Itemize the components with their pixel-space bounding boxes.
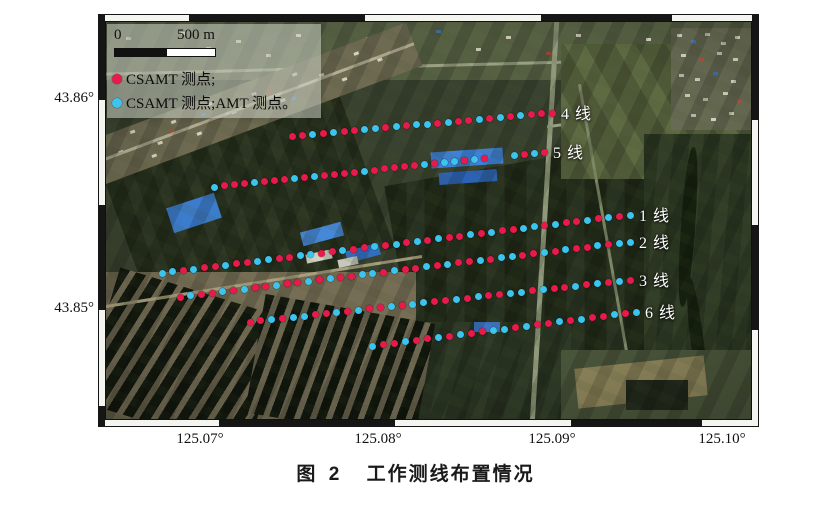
survey-point-csamt	[541, 149, 548, 156]
survey-point-csamt	[411, 162, 418, 169]
survey-point-csamt-amt	[435, 334, 442, 341]
survey-point-csamt-amt	[541, 249, 548, 256]
survey-point-csamt	[230, 287, 237, 294]
survey-point-csamt	[231, 181, 238, 188]
survey-point-csamt	[351, 169, 358, 176]
legend-item-csamt: CSAMT 测点;	[112, 68, 215, 89]
latitude-tick-label: 43.86°	[36, 90, 94, 107]
survey-point-csamt	[567, 317, 574, 324]
survey-point-csamt-amt	[441, 159, 448, 166]
survey-point-csamt-amt	[633, 309, 640, 316]
survey-point-csamt-amt	[451, 158, 458, 165]
survey-point-csamt	[468, 330, 475, 337]
survey-point-csamt-amt	[611, 311, 618, 318]
survey-point-csamt	[320, 130, 327, 137]
survey-point-csamt-amt	[453, 296, 460, 303]
survey-point-csamt	[350, 246, 357, 253]
survey-point-csamt	[446, 234, 453, 241]
survey-point-csamt	[434, 120, 441, 127]
survey-point-csamt	[512, 324, 519, 331]
survey-point-csamt-amt	[251, 179, 258, 186]
survey-point-csamt	[221, 182, 228, 189]
longitude-tick-label: 125.10°	[680, 431, 764, 448]
survey-point-csamt-amt	[273, 282, 280, 289]
figure-title: 工作测线布置情况	[367, 464, 535, 485]
survey-point-csamt	[519, 252, 526, 259]
survey-point-csamt	[299, 132, 306, 139]
survey-line-label: 1 线	[639, 202, 670, 226]
survey-point-csamt-amt	[159, 270, 166, 277]
survey-point-csamt	[424, 237, 431, 244]
figure-number: 图 2	[296, 464, 343, 485]
survey-point-csamt	[401, 163, 408, 170]
survey-point-csamt-amt	[393, 123, 400, 130]
survey-point-csamt-amt	[327, 275, 334, 282]
survey-point-csamt	[573, 245, 580, 252]
survey-point-csamt	[261, 178, 268, 185]
survey-point-csamt	[289, 133, 296, 140]
survey-point-csamt	[391, 164, 398, 171]
survey-point-csamt	[279, 315, 286, 322]
survey-point-csamt	[455, 118, 462, 125]
legend-item-label: CSAMT 测点;	[126, 68, 215, 89]
survey-point-csamt-amt	[222, 262, 229, 269]
survey-point-csamt	[616, 213, 623, 220]
survey-point-csamt	[180, 267, 187, 274]
survey-point-csamt	[456, 233, 463, 240]
survey-point-csamt-amt	[211, 184, 218, 191]
survey-point-csamt-amt	[540, 286, 547, 293]
survey-point-csamt-amt	[616, 240, 623, 247]
survey-point-csamt-amt	[518, 289, 525, 296]
survey-point-csamt	[413, 337, 420, 344]
survey-point-csamt	[528, 111, 535, 118]
survey-point-csamt-amt	[388, 303, 395, 310]
csamt-amt-point-icon	[112, 98, 122, 108]
survey-point-csamt-amt	[372, 125, 379, 132]
survey-point-csamt-amt	[305, 278, 312, 285]
survey-line-label: 5 线	[553, 139, 584, 163]
survey-point-csamt	[478, 230, 485, 237]
survey-point-csamt	[627, 277, 634, 284]
survey-point-csamt-amt	[477, 257, 484, 264]
survey-point-csamt-amt	[594, 280, 601, 287]
survey-point-csamt	[600, 313, 607, 320]
longitude-tick-label: 125.08°	[336, 431, 420, 448]
survey-point-csamt	[382, 242, 389, 249]
survey-point-csamt	[212, 263, 219, 270]
survey-point-csamt	[446, 333, 453, 340]
survey-point-csamt-amt	[457, 331, 464, 338]
survey-point-csamt	[442, 297, 449, 304]
survey-point-csamt	[341, 128, 348, 135]
survey-point-csamt	[252, 284, 259, 291]
neatline-bottom	[99, 420, 758, 426]
survey-point-csamt-amt	[330, 129, 337, 136]
survey-point-csamt	[589, 314, 596, 321]
survey-point-csamt-amt	[520, 225, 527, 232]
survey-point-csamt-amt	[523, 323, 530, 330]
legend-item-label: CSAMT 测点;AMT 测点。	[126, 92, 297, 113]
survey-point-csamt-amt	[501, 326, 508, 333]
survey-point-csamt	[318, 250, 325, 257]
survey-point-csamt-amt	[369, 343, 376, 350]
survey-point-csamt	[331, 171, 338, 178]
survey-point-csamt-amt	[627, 212, 634, 219]
survey-point-csamt	[209, 290, 216, 297]
survey-point-csamt	[551, 285, 558, 292]
survey-point-csamt-amt	[507, 290, 514, 297]
survey-point-csamt-amt	[291, 175, 298, 182]
survey-point-csamt	[487, 256, 494, 263]
survey-point-csamt	[521, 151, 528, 158]
longitude-tick-label: 125.09°	[510, 431, 594, 448]
survey-point-csamt-amt	[309, 131, 316, 138]
survey-point-csamt	[534, 321, 541, 328]
survey-point-csamt	[323, 310, 330, 317]
survey-point-csamt-amt	[476, 116, 483, 123]
survey-point-csamt	[286, 254, 293, 261]
survey-point-csamt	[549, 110, 556, 117]
survey-point-csamt	[177, 294, 184, 301]
survey-point-csamt-amt	[531, 150, 538, 157]
survey-point-csamt	[241, 180, 248, 187]
survey-point-csamt-amt	[584, 217, 591, 224]
survey-point-csamt	[481, 155, 488, 162]
scalebar-zero-label: 0	[114, 27, 122, 44]
survey-point-csamt	[271, 177, 278, 184]
survey-point-csamt-amt	[254, 258, 261, 265]
survey-point-csamt	[545, 320, 552, 327]
survey-point-csamt-amt	[471, 156, 478, 163]
survey-point-csamt	[479, 328, 486, 335]
scale-bar	[114, 48, 216, 57]
survey-point-csamt-amt	[355, 307, 362, 314]
survey-point-csamt	[371, 167, 378, 174]
survey-point-csamt	[337, 274, 344, 281]
survey-line-label: 6 线	[645, 299, 676, 323]
figure-caption: 图 2 工作测线布置情况	[0, 459, 831, 486]
survey-point-csamt-amt	[311, 173, 318, 180]
survey-point-csamt	[321, 172, 328, 179]
survey-point-csamt	[399, 302, 406, 309]
survey-line-label: 3 线	[639, 267, 670, 291]
survey-point-csamt	[412, 265, 419, 272]
satellite-map: 4 线5 线1 线2 线3 线6 线 0 500 m CSAMT 测点; CSA…	[105, 21, 752, 420]
survey-point-csamt-amt	[552, 221, 559, 228]
survey-point-csamt	[507, 113, 514, 120]
survey-point-csamt	[466, 258, 473, 265]
survey-point-csamt-amt	[190, 266, 197, 273]
survey-point-csamt	[431, 160, 438, 167]
survey-point-csamt	[424, 335, 431, 342]
scalebar-distance-label: 500 m	[177, 27, 215, 44]
legend-item-csamt-amt: CSAMT 测点;AMT 测点。	[112, 92, 297, 113]
neatline-right	[752, 15, 758, 426]
survey-point-csamt	[464, 295, 471, 302]
map-frame: 4 线5 线1 线2 线3 线6 线 0 500 m CSAMT 测点; CSA…	[98, 14, 759, 427]
survey-point-csamt	[247, 319, 254, 326]
survey-point-csamt	[605, 279, 612, 286]
longitude-tick-label: 125.07°	[158, 431, 242, 448]
survey-point-csamt	[402, 266, 409, 273]
survey-point-csamt-amt	[490, 327, 497, 334]
survey-point-csamt	[198, 291, 205, 298]
survey-point-csamt	[552, 248, 559, 255]
survey-point-csamt-amt	[359, 271, 366, 278]
survey-point-csamt	[622, 310, 629, 317]
survey-point-csamt	[351, 127, 358, 134]
survey-point-csamt-amt	[241, 286, 248, 293]
survey-point-csamt-amt	[414, 238, 421, 245]
survey-point-csamt-amt	[488, 229, 495, 236]
survey-point-csamt-amt	[393, 241, 400, 248]
survey-point-csamt-amt	[627, 239, 634, 246]
survey-point-csamt	[341, 170, 348, 177]
survey-point-csamt-amt	[475, 293, 482, 300]
survey-point-csamt	[344, 308, 351, 315]
survey-point-csamt-amt	[290, 314, 297, 321]
survey-point-csamt-amt	[509, 253, 516, 260]
survey-point-csamt-amt	[572, 283, 579, 290]
survey-point-csamt-amt	[445, 119, 452, 126]
survey-point-csamt	[380, 341, 387, 348]
survey-point-csamt	[377, 304, 384, 311]
survey-line-label: 4 线	[561, 100, 592, 124]
survey-point-csamt-amt	[361, 168, 368, 175]
survey-point-csamt	[281, 176, 288, 183]
survey-point-csamt	[301, 174, 308, 181]
survey-point-csamt	[312, 311, 319, 318]
survey-point-csamt-amt	[421, 161, 428, 168]
survey-point-csamt	[348, 273, 355, 280]
survey-point-csamt-amt	[497, 114, 504, 121]
survey-point-csamt	[584, 244, 591, 251]
map-legend: 0 500 m CSAMT 测点; CSAMT 测点;AMT 测点。	[107, 24, 321, 118]
survey-point-csamt-amt	[578, 316, 585, 323]
survey-point-csamt	[434, 262, 441, 269]
survey-point-csamt-amt	[402, 338, 409, 345]
survey-point-csamt-amt	[616, 278, 623, 285]
survey-point-csamt-amt	[301, 313, 308, 320]
survey-point-csamt	[461, 157, 468, 164]
survey-point-csamt-amt	[424, 121, 431, 128]
latitude-tick-label: 43.85°	[36, 300, 94, 317]
survey-point-csamt	[244, 259, 251, 266]
survey-point-csamt-amt	[409, 301, 416, 308]
csamt-point-icon	[112, 74, 122, 84]
survey-point-csamt	[391, 340, 398, 347]
survey-point-csamt	[510, 226, 517, 233]
survey-point-csamt-amt	[556, 318, 563, 325]
figure: 4 线5 线1 线2 线3 线6 线 0 500 m CSAMT 测点; CSA…	[0, 0, 831, 515]
survey-point-csamt	[380, 269, 387, 276]
survey-point-csamt-amt	[511, 152, 518, 159]
survey-line-label: 2 线	[639, 229, 670, 253]
survey-point-csamt	[276, 255, 283, 262]
